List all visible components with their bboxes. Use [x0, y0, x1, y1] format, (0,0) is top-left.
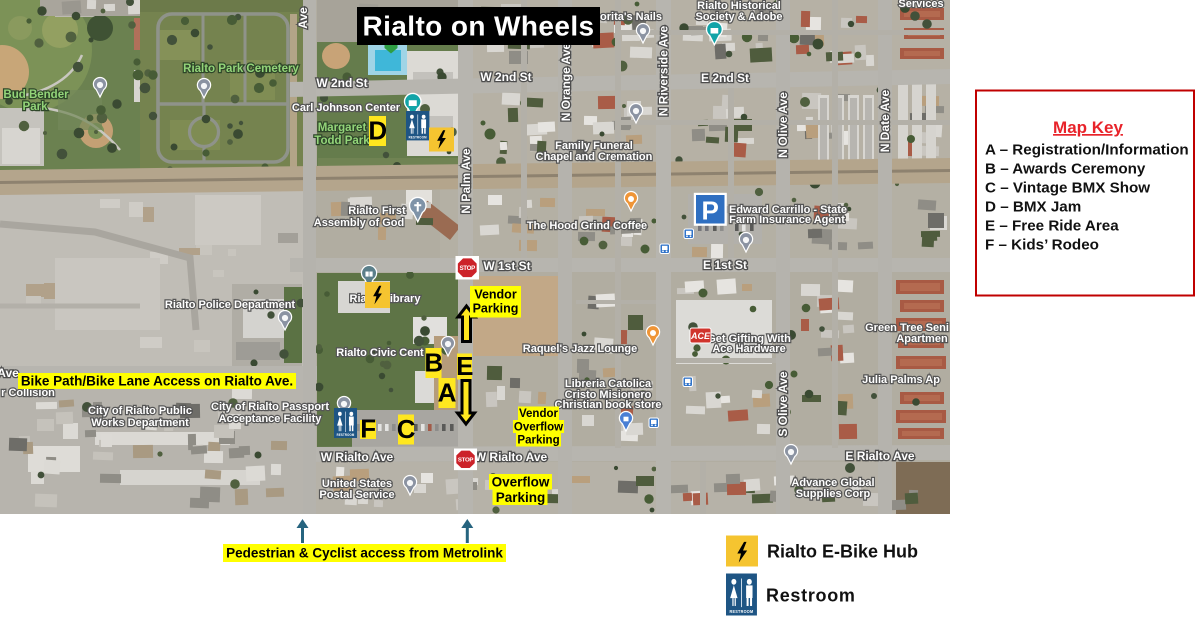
svg-text:orita's Nails: orita's Nails — [600, 11, 662, 23]
svg-text:Rialto E-Bike Hub: Rialto E-Bike Hub — [767, 542, 918, 562]
svg-text:Overflow: Overflow — [514, 422, 563, 434]
svg-text:Vendor: Vendor — [519, 408, 559, 420]
svg-text:Overflow: Overflow — [492, 475, 550, 490]
svg-text:Restroom: Restroom — [766, 586, 856, 606]
svg-text:Apartmen: Apartmen — [896, 333, 948, 345]
svg-text:W Rialto Ave: W Rialto Ave — [475, 450, 548, 464]
svg-text:Map Key: Map Key — [1053, 118, 1123, 137]
svg-text:Society & Adobe: Society & Adobe — [696, 11, 783, 23]
svg-text:N Riverside Ave: N Riverside Ave — [657, 25, 671, 116]
svg-text:Margaret: Margaret — [318, 122, 367, 134]
svg-text:Todd Park: Todd Park — [314, 135, 370, 147]
svg-text:Julia Palms Ap: Julia Palms Ap — [862, 374, 940, 386]
svg-text:Services: Services — [898, 0, 943, 10]
svg-text:Rialto Park Cemetery: Rialto Park Cemetery — [183, 63, 299, 75]
svg-text:Christian book store: Christian book store — [555, 399, 662, 411]
svg-text:D – BMX Jam: D – BMX Jam — [985, 199, 1081, 216]
svg-text:F: F — [360, 414, 376, 444]
svg-text:Ave: Ave — [0, 366, 19, 380]
svg-text:A: A — [438, 378, 457, 408]
svg-text:ACE: ACE — [690, 331, 711, 341]
svg-text:Raquel's Jazz Lounge: Raquel's Jazz Lounge — [523, 343, 637, 355]
svg-text:E: E — [456, 351, 473, 381]
svg-text:Farm Insurance Agent: Farm Insurance Agent — [729, 214, 845, 226]
svg-text:B: B — [424, 348, 443, 378]
svg-text:City of Rialto Passport: City of Rialto Passport — [211, 401, 329, 413]
svg-text:The Hood Grind Coffee: The Hood Grind Coffee — [527, 220, 647, 232]
svg-text:Rialto Civic Cent: Rialto Civic Cent — [336, 347, 424, 359]
svg-text:W Rialto Ave: W Rialto Ave — [321, 450, 394, 464]
svg-text:E 2nd St: E 2nd St — [701, 71, 749, 85]
svg-text:W 1st St: W 1st St — [483, 259, 530, 273]
svg-text:N Orange Ave: N Orange Ave — [559, 42, 573, 121]
svg-text:Vendor: Vendor — [474, 288, 517, 302]
svg-text:B – Awards Ceremony: B – Awards Ceremony — [985, 161, 1146, 178]
svg-text:E – Free Ride Area: E – Free Ride Area — [985, 218, 1119, 235]
svg-text:D: D — [368, 116, 387, 146]
svg-text:E 1st St: E 1st St — [703, 258, 747, 272]
svg-text:N Olive Ave: N Olive Ave — [776, 92, 790, 158]
svg-text:Ave: Ave — [296, 7, 310, 29]
svg-text:Rialto Police Department: Rialto Police Department — [165, 299, 296, 311]
svg-text:Bike Path/Bike Lane Access on: Bike Path/Bike Lane Access on Rialto Ave… — [21, 374, 293, 389]
svg-text:C – Vintage BMX Show: C – Vintage BMX Show — [985, 180, 1150, 197]
svg-text:Supplies Corp: Supplies Corp — [796, 488, 871, 500]
svg-text:Parking: Parking — [473, 302, 519, 316]
svg-text:W 2nd St: W 2nd St — [480, 70, 531, 84]
svg-text:Acceptance Facility: Acceptance Facility — [219, 413, 323, 425]
svg-text:S Olive Ave: S Olive Ave — [776, 371, 790, 436]
svg-text:Chapel and Cremation: Chapel and Cremation — [536, 151, 653, 163]
svg-text:Postal Service: Postal Service — [319, 489, 394, 501]
svg-text:Carl Johnson Center: Carl Johnson Center — [292, 102, 401, 114]
svg-text:Ace Hardware: Ace Hardware — [712, 343, 785, 355]
svg-text:P: P — [702, 196, 719, 226]
svg-text:Parking: Parking — [496, 490, 546, 505]
svg-text:A – Registration/Information: A – Registration/Information — [985, 142, 1189, 159]
svg-text:E Rialto Ave: E Rialto Ave — [845, 449, 914, 463]
svg-text:Rialto on Wheels: Rialto on Wheels — [363, 11, 595, 42]
svg-text:N Date Ave: N Date Ave — [878, 89, 892, 152]
svg-text:C: C — [397, 414, 416, 444]
svg-text:Assembly of God: Assembly of God — [314, 217, 404, 229]
svg-text:Rialto First: Rialto First — [348, 205, 406, 217]
svg-text:Park: Park — [23, 101, 49, 113]
svg-text:Pedestrian & Cyclist access fr: Pedestrian & Cyclist access from Metroli… — [226, 546, 503, 561]
svg-text:Works Department: Works Department — [91, 417, 189, 429]
svg-text:N Palm Ave: N Palm Ave — [459, 148, 473, 213]
svg-text:F – Kids’ Rodeo: F – Kids’ Rodeo — [985, 237, 1099, 254]
svg-text:Bud Bender: Bud Bender — [3, 89, 69, 101]
svg-text:W 2nd St: W 2nd St — [316, 76, 367, 90]
svg-text:City of Rialto Public: City of Rialto Public — [88, 405, 192, 417]
svg-text:Parking: Parking — [517, 435, 559, 447]
